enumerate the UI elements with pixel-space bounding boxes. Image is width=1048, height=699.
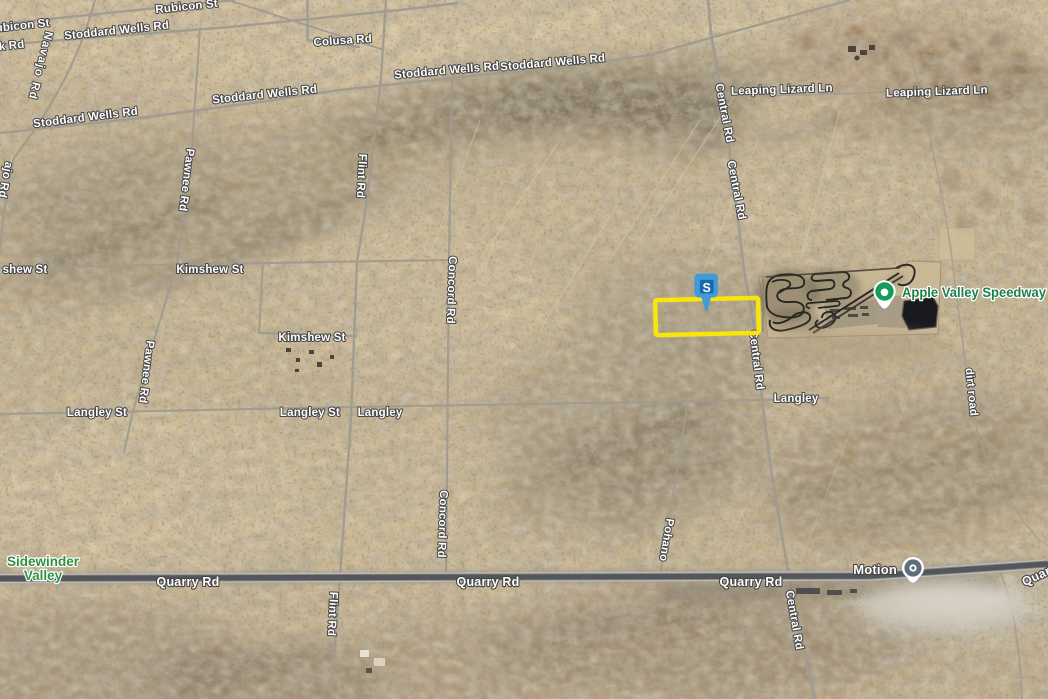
svg-text:Langley: Langley	[774, 393, 819, 405]
svg-text:Langley St: Langley St	[67, 407, 127, 419]
svg-text:Sidewinder: Sidewinder	[7, 554, 80, 569]
svg-text:Langley St: Langley St	[280, 407, 340, 419]
svg-text:Concord Rd: Concord Rd	[435, 490, 449, 558]
svg-text:Flint Rd: Flint Rd	[354, 153, 368, 198]
svg-text:Flint Rd: Flint Rd	[325, 591, 339, 636]
svg-text:Langley: Langley	[358, 407, 403, 419]
svg-text:shew St: shew St	[3, 264, 48, 276]
svg-text:Motion: Motion	[853, 562, 897, 577]
svg-text:Apple Valley Speedway: Apple Valley Speedway	[902, 284, 1046, 300]
svg-text:S: S	[703, 281, 711, 295]
svg-text:Valley: Valley	[24, 568, 63, 583]
svg-text:Quarry Rd: Quarry Rd	[457, 575, 520, 589]
svg-text:Quarry Rd: Quarry Rd	[157, 575, 220, 589]
svg-text:Kimshew St: Kimshew St	[176, 264, 243, 276]
svg-text:Quarry Rd: Quarry Rd	[720, 575, 783, 589]
svg-text:Kimshew St: Kimshew St	[278, 332, 345, 344]
svg-text:Concord Rd: Concord Rd	[444, 256, 458, 324]
